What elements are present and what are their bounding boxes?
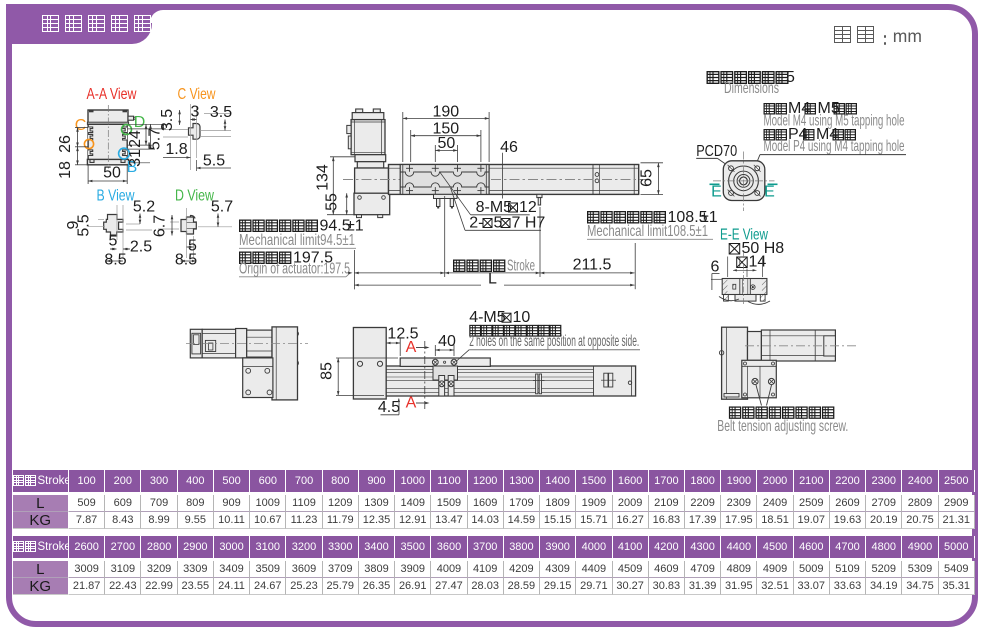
svg-text:Origin of actuator:197.5: Origin of actuator:197.5	[239, 261, 350, 278]
svg-text:3.5: 3.5	[210, 104, 232, 121]
svg-text:5.5: 5.5	[203, 153, 225, 170]
svg-text:Mechanical limit94.5±1: Mechanical limit94.5±1	[239, 232, 355, 249]
svg-text:55: 55	[324, 193, 341, 211]
svg-text:134: 134	[315, 164, 332, 191]
svg-text:D: D	[134, 114, 146, 131]
svg-text:5.2: 5.2	[133, 199, 155, 216]
svg-text:24: 24	[127, 130, 144, 148]
svg-text:6.7: 6.7	[152, 215, 169, 237]
svg-text:31: 31	[127, 149, 144, 167]
svg-text:Stroke: Stroke	[507, 258, 535, 275]
svg-text:14: 14	[749, 254, 767, 271]
svg-text:D View: D View	[175, 188, 214, 205]
svg-text:A-A View: A-A View	[87, 86, 137, 103]
svg-text:8.5: 8.5	[175, 252, 197, 269]
svg-text:5.7: 5.7	[211, 199, 233, 216]
svg-text:2-: 2-	[469, 215, 483, 232]
svg-text:4-M5: 4-M5	[469, 309, 506, 326]
svg-text:6: 6	[711, 259, 720, 276]
svg-text:Dimensions: Dimensions	[724, 80, 779, 97]
svg-text:211.5: 211.5	[573, 257, 612, 274]
svg-text:C View: C View	[178, 86, 216, 103]
svg-text:46: 46	[500, 139, 518, 156]
svg-text:8.5: 8.5	[104, 252, 126, 269]
svg-text:40: 40	[438, 333, 456, 350]
svg-text:50: 50	[438, 135, 456, 152]
svg-text:12: 12	[519, 199, 537, 216]
svg-text:L: L	[488, 271, 497, 288]
svg-text:8-M5: 8-M5	[476, 199, 513, 216]
svg-text:E: E	[764, 184, 775, 201]
svg-text:A: A	[406, 395, 417, 412]
svg-text:5: 5	[109, 233, 118, 250]
svg-text:50: 50	[103, 165, 121, 182]
svg-text:Belt tension adjusting screw.: Belt tension adjusting screw.	[717, 418, 848, 435]
svg-text:85: 85	[319, 362, 336, 380]
svg-text:E: E	[711, 184, 722, 201]
svg-text:Model P4 using M4 tapping hole: Model P4 using M4 tapping hole	[764, 138, 905, 155]
svg-text:B View: B View	[97, 188, 135, 205]
svg-text:26: 26	[57, 135, 74, 153]
svg-text:2 holes on the same position a: 2 holes on the same position at opposite…	[469, 333, 639, 350]
svg-text:190: 190	[432, 104, 459, 121]
svg-text:Mechanical limit108.5±1: Mechanical limit108.5±1	[587, 223, 708, 240]
svg-text:12.5: 12.5	[387, 326, 418, 343]
svg-text:5.5: 5.5	[76, 214, 93, 236]
svg-text:3: 3	[191, 104, 200, 121]
svg-text:5: 5	[786, 69, 795, 86]
svg-text:4.5: 4.5	[378, 399, 400, 416]
svg-text:1.8: 1.8	[165, 141, 187, 158]
svg-text:3.5: 3.5	[159, 109, 176, 131]
svg-text:PCD70: PCD70	[696, 143, 737, 160]
svg-text:65: 65	[639, 169, 656, 187]
svg-text:10: 10	[513, 309, 531, 326]
svg-text:2.5: 2.5	[130, 239, 152, 256]
svg-text:18: 18	[57, 161, 74, 179]
